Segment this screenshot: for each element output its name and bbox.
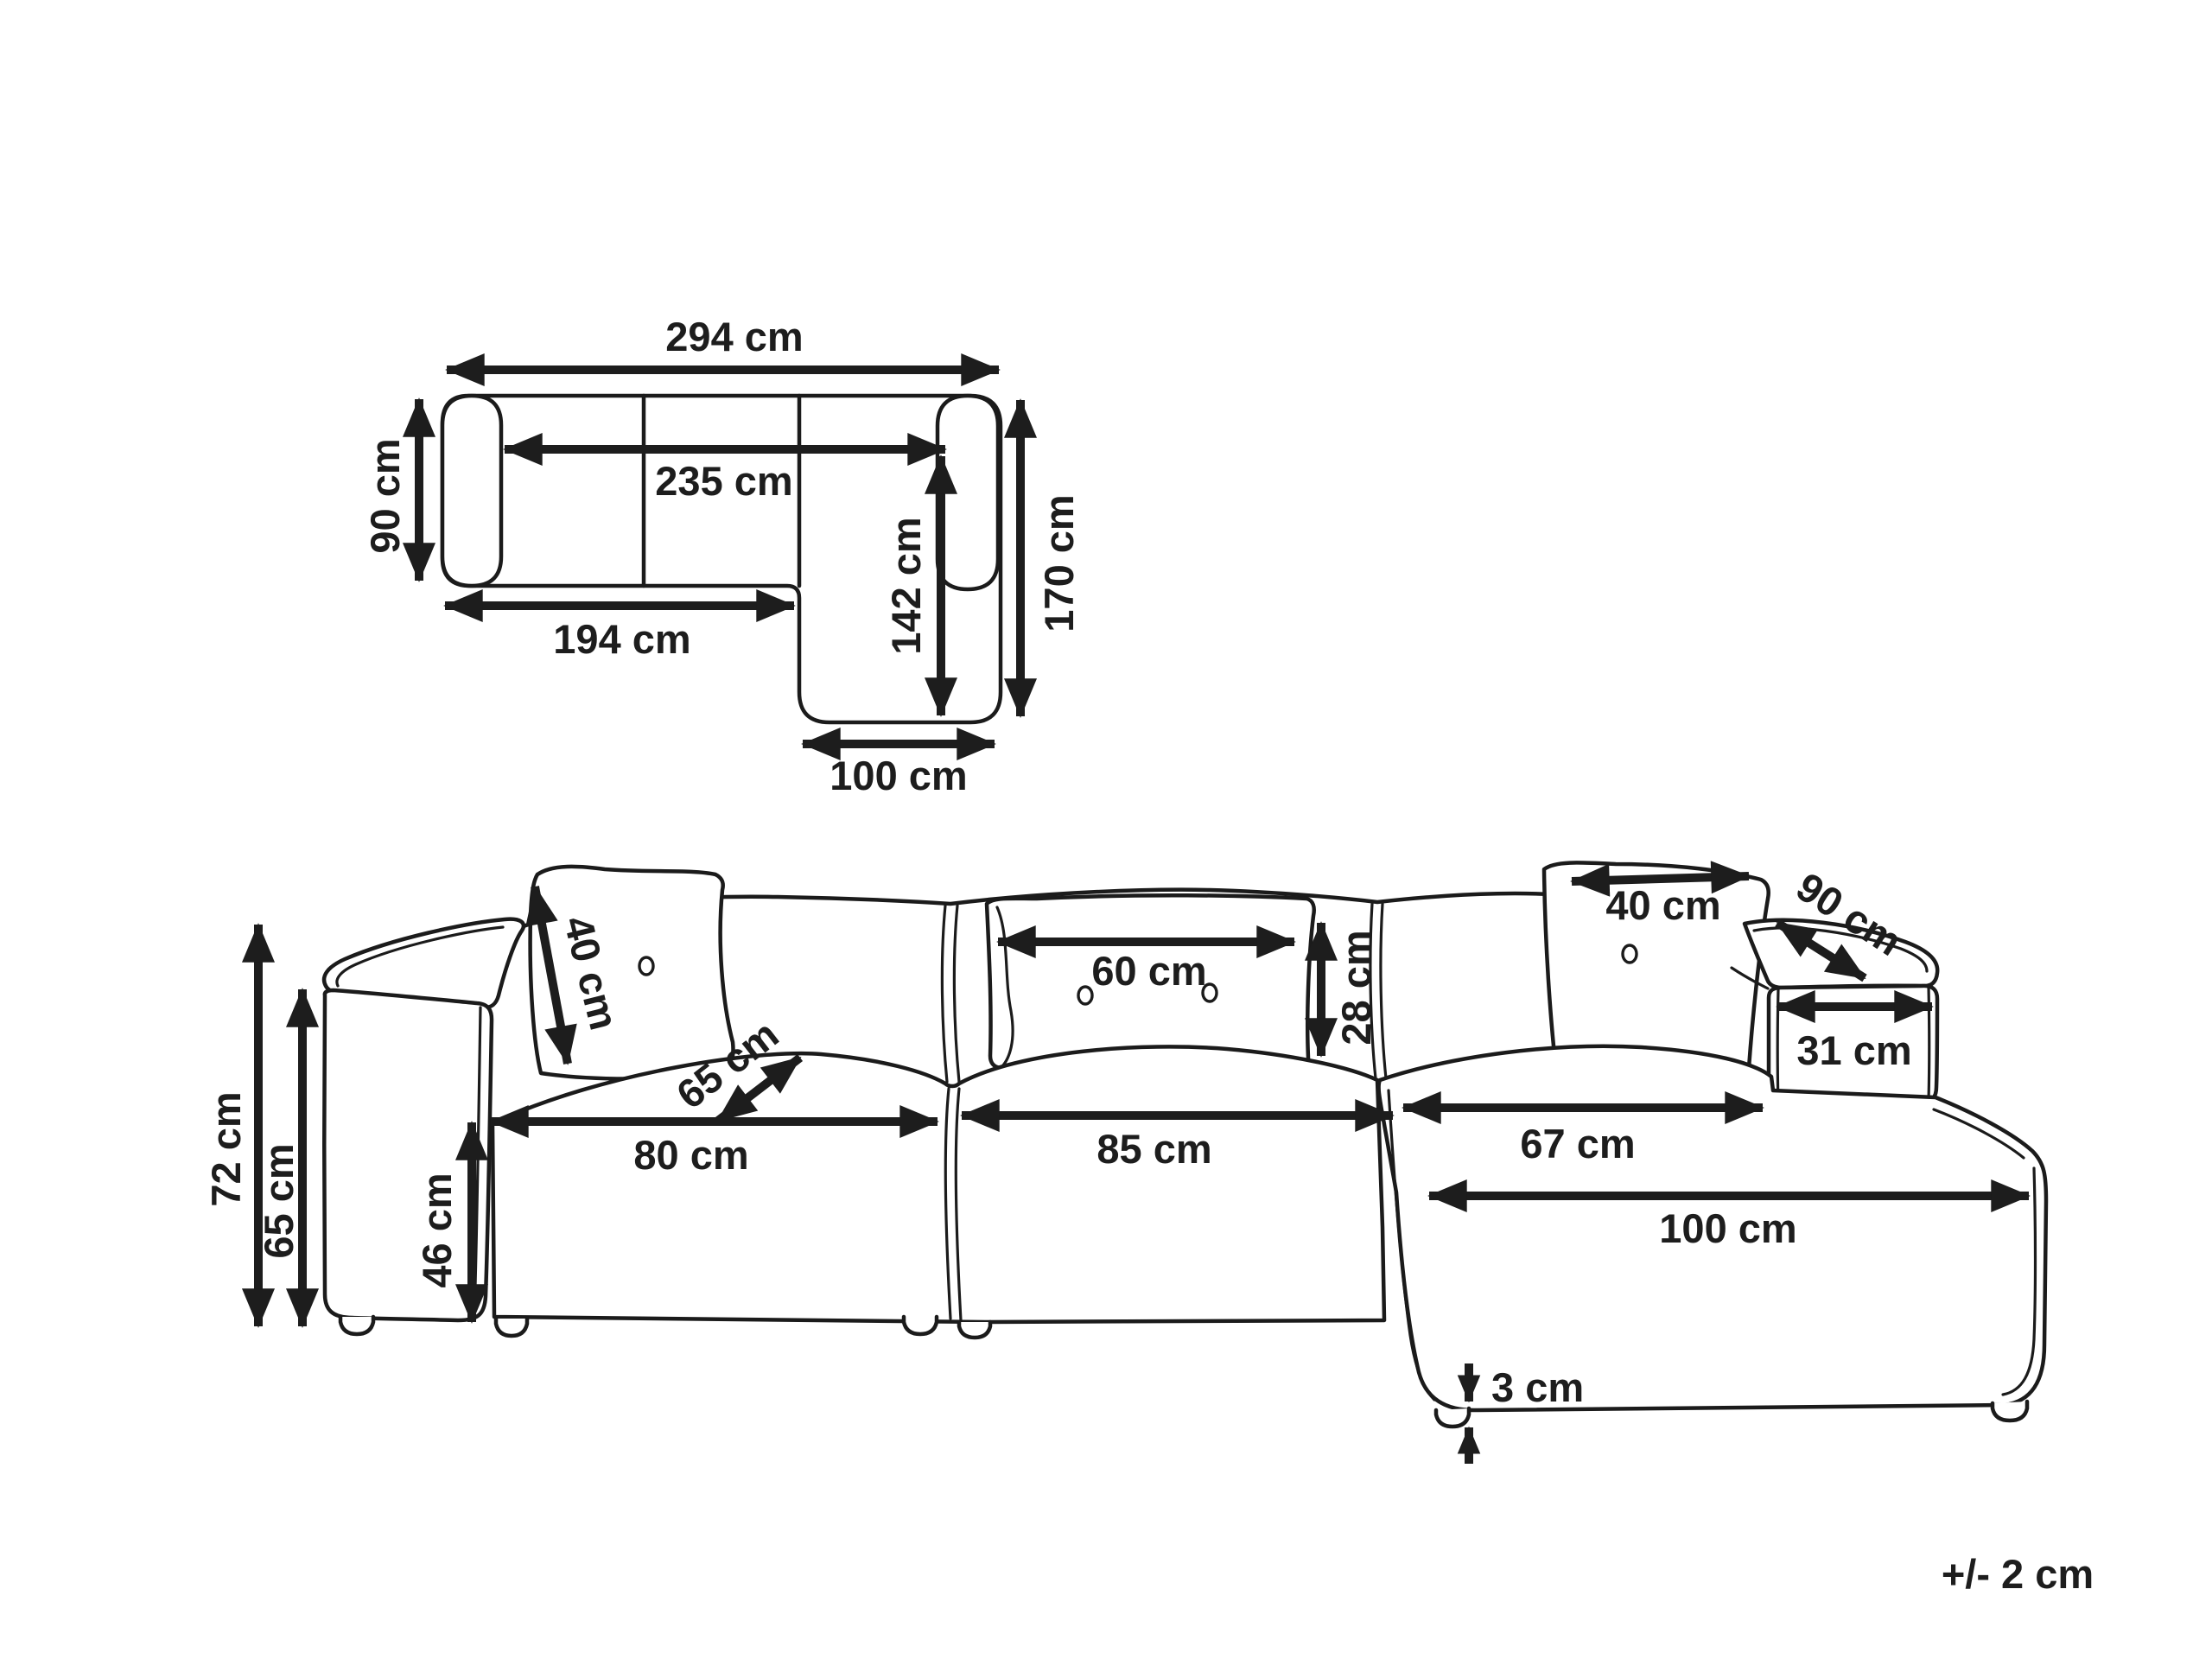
plan-left-section-label: 194 cm xyxy=(553,616,690,662)
plan-dim-chaise-width: 100 cm xyxy=(803,744,995,798)
sofa-dimension-diagram: 294 cm 90 cm 235 cm 194 cm 142 cm 170 cm… xyxy=(0,0,2212,1659)
tolerance-note: +/- 2 cm xyxy=(1942,1551,2094,1597)
right-pillow-button-icon xyxy=(1623,945,1637,963)
plan-total-width-label: 294 cm xyxy=(665,314,803,359)
plan-dim-total-width: 294 cm xyxy=(447,314,999,370)
foot-module1-right xyxy=(904,1317,937,1334)
plan-dim-side-depth: 90 cm xyxy=(362,399,419,581)
plan-view: 294 cm 90 cm 235 cm 194 cm 142 cm 170 cm… xyxy=(362,314,1082,798)
front-seat-height-label: 46 cm xyxy=(414,1173,460,1287)
middle-pillow-button-left-icon xyxy=(1078,987,1092,1004)
plan-total-depth-label: 170 cm xyxy=(1036,494,1082,632)
front-view: 72 cm 65 cm 46 cm 40 cm 65 cm 80 cm 60 c… xyxy=(203,862,2046,1464)
left-pillow-button-icon xyxy=(639,957,653,975)
plan-chaise-width-label: 100 cm xyxy=(829,753,967,798)
foot-module2-left xyxy=(959,1322,990,1338)
left-armrest-front xyxy=(324,990,492,1320)
right-armrest xyxy=(1745,920,1937,1105)
plan-inner-width-label: 235 cm xyxy=(655,458,792,504)
front-back-height-label: 65 cm xyxy=(256,1143,302,1258)
plan-right-armrest xyxy=(938,396,998,589)
front-armrest-width-label: 31 cm xyxy=(1796,1027,1911,1073)
front-middle-pillow-height-label: 28 cm xyxy=(1333,930,1379,1045)
foot-armrest xyxy=(340,1317,373,1334)
front-total-height-label: 72 cm xyxy=(203,1091,249,1206)
front-corner-seat-width-label: 67 cm xyxy=(1520,1121,1635,1166)
seat-cushions xyxy=(493,1046,1384,1322)
foot-chaise-left xyxy=(1436,1408,1469,1427)
front-dim-total-height: 72 cm xyxy=(203,925,258,1326)
front-chaise-length-label: 100 cm xyxy=(1659,1205,1796,1251)
plan-dim-total-depth: 170 cm xyxy=(1020,400,1082,716)
plan-chaise-inner-label: 142 cm xyxy=(883,517,929,654)
front-dim-back-height: 65 cm xyxy=(256,989,302,1326)
front-left-seat-width-label: 80 cm xyxy=(633,1132,748,1178)
plan-side-depth-label: 90 cm xyxy=(362,438,408,553)
front-middle-pillow-width-label: 60 cm xyxy=(1091,948,1206,994)
foot-module1-left xyxy=(496,1319,527,1336)
front-leg-height-label: 3 cm xyxy=(1491,1364,1584,1410)
foot-chaise-right xyxy=(1993,1402,2027,1421)
plan-dim-left-section: 194 cm xyxy=(445,606,794,662)
front-middle-seat-width-label: 85 cm xyxy=(1096,1126,1211,1172)
plan-left-armrest xyxy=(442,396,501,586)
diagram-canvas: 294 cm 90 cm 235 cm 194 cm 142 cm 170 cm… xyxy=(0,0,2212,1659)
front-right-pillow-label: 40 cm xyxy=(1605,882,1720,928)
